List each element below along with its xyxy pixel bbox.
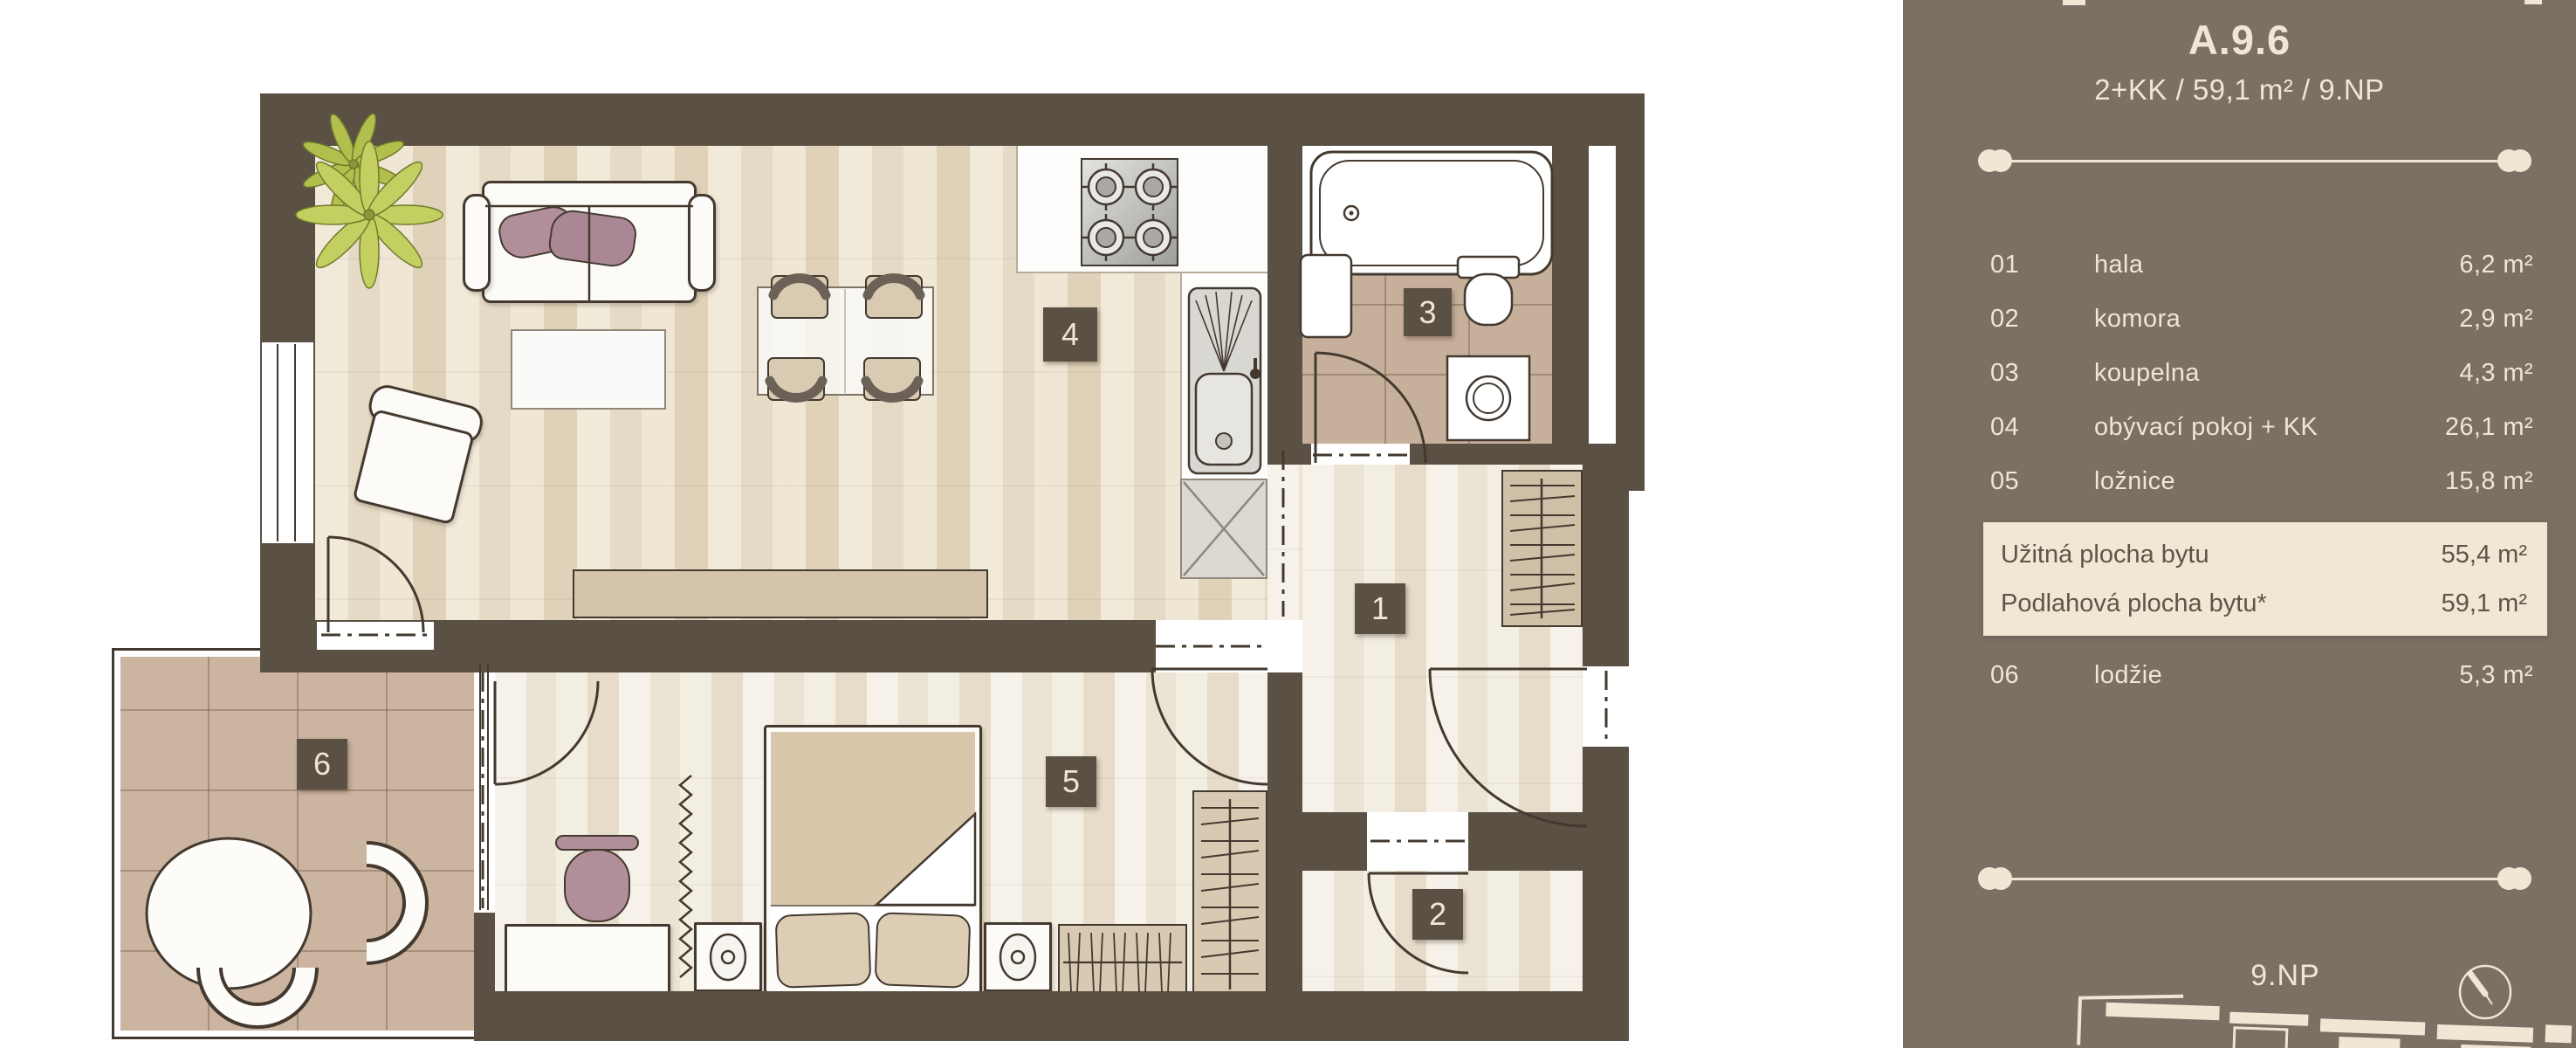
room-row: 03 koupelna 4,3 m² (1990, 346, 2533, 400)
bathroom-upper-floor (1302, 146, 1552, 272)
room-number: 06 (1990, 661, 2094, 690)
wall (1302, 812, 1367, 871)
unit-info-panel: A.9.6 2+KK / 59,1 m² / 9.NP 01 hala 6,2 … (1903, 0, 2576, 1048)
building-footprint-icon (2051, 992, 2575, 1048)
room-row: 02 komora 2,9 m² (1990, 292, 2533, 346)
dresser (1058, 924, 1187, 999)
divider (1978, 148, 2532, 173)
room-row: 06 lodžie 5,3 m² (1990, 648, 2533, 702)
room-area: 2,9 m² (2459, 305, 2533, 334)
unit-subtitle: 2+KK / 59,1 m² / 9.NP (1903, 73, 2576, 107)
entrance-opening (1583, 666, 1629, 747)
floor-label: 9.NP (2250, 959, 2320, 993)
total-row: Podlahová plocha bytu* 59,1 m² (2001, 579, 2527, 628)
wall (1583, 465, 1629, 666)
wall (1267, 444, 1311, 465)
pillow (775, 912, 872, 989)
room-tag-label: 1 (1371, 590, 1389, 627)
loggia-door-glass (474, 659, 495, 913)
room-number: 01 (1990, 251, 2094, 279)
divider-line (2006, 878, 2504, 880)
bed-duvet (771, 732, 975, 907)
room-tag-komora: 2 (1412, 889, 1463, 940)
apartment-plan-page: 1 2 3 4 5 6 A.9.6 2+KK / 59,1 m² / 9.NP … (0, 0, 2576, 1048)
nightstand (984, 922, 1052, 992)
loggia-access-opening (317, 622, 434, 650)
hall-passage-floor (1267, 444, 1302, 620)
decor-mark (2063, 0, 2085, 5)
tv-sideboard (573, 569, 988, 618)
room-tag-obyvaci-pokoj: 4 (1043, 307, 1097, 362)
room-row: 04 obývací pokoj + KK 26,1 m² (1990, 400, 2533, 454)
room-list: 01 hala 6,2 m² 02 komora 2,9 m² 03 koupe… (1990, 238, 2533, 508)
area-totals-box: Užitná plocha bytu 55,4 m² Podlahová plo… (1983, 522, 2547, 636)
stove-icon (1081, 158, 1178, 266)
decor-mark (2524, 0, 2542, 4)
room-name: komora (2094, 305, 2459, 334)
office-chair (564, 849, 630, 922)
room-area: 26,1 m² (2445, 413, 2533, 442)
wall (1267, 672, 1302, 991)
room-number: 05 (1990, 467, 2094, 496)
room-number: 04 (1990, 413, 2094, 442)
window (262, 342, 313, 543)
room-tag-label: 6 (313, 746, 331, 783)
room-tag-label: 3 (1419, 294, 1436, 331)
room-row: 01 hala 6,2 m² (1990, 238, 2533, 292)
total-value: 59,1 m² (2442, 589, 2527, 618)
dishwasher-icon (1180, 479, 1267, 579)
wall (495, 991, 1629, 1041)
total-row: Užitná plocha bytu 55,4 m² (2001, 530, 2527, 579)
room-number: 02 (1990, 305, 2094, 334)
divider (1978, 866, 2532, 891)
wall (1468, 812, 1583, 871)
nightstand (694, 922, 762, 992)
room-tag-label: 5 (1062, 763, 1080, 800)
room-row: 05 ložnice 15,8 m² (1990, 454, 2533, 508)
hall-wardrobe (1501, 470, 1583, 627)
wall (1267, 146, 1302, 444)
loggia-tile-floor (120, 657, 474, 1031)
room-area: 4,3 m² (2459, 359, 2533, 388)
room-tag-label: 2 (1429, 896, 1446, 933)
room-tag-lodzie: 6 (297, 739, 347, 789)
room-area: 6,2 m² (2459, 251, 2533, 279)
room-area: 5,3 m² (2459, 661, 2533, 690)
room-name: koupelna (2094, 359, 2459, 388)
room-tag-hala: 1 (1355, 583, 1405, 634)
coffee-table (511, 329, 666, 410)
total-label: Podlahová plocha bytu* (2001, 589, 2442, 618)
room-name: obývací pokoj + KK (2094, 413, 2445, 442)
office-chair-back (555, 835, 639, 851)
room-name: ložnice (2094, 467, 2445, 496)
wall (260, 93, 1645, 146)
wall (1552, 146, 1589, 444)
divider-dots-icon (1978, 866, 2013, 891)
room-area: 15,8 m² (2445, 467, 2533, 496)
wardrobe (1192, 790, 1267, 998)
divider-dots-icon (2497, 866, 2532, 891)
divider-line (2006, 160, 2504, 162)
divider-dots-icon (1978, 148, 2013, 173)
pillow (875, 912, 972, 989)
room-name: hala (2094, 251, 2459, 279)
wall (1410, 444, 1629, 465)
room-tag-koupelna: 3 (1404, 288, 1452, 336)
room-tag-loznice: 5 (1046, 756, 1096, 807)
room-number: 03 (1990, 359, 2094, 388)
unit-title: A.9.6 (1903, 16, 2576, 64)
sofa-armrest (463, 194, 491, 292)
room-tag-label: 4 (1061, 316, 1079, 353)
total-value: 55,4 m² (2442, 541, 2527, 569)
floor-plan: 1 2 3 4 5 6 (0, 0, 1903, 1048)
wall (1616, 93, 1645, 491)
room-name: lodžie (2094, 661, 2459, 690)
sofa-armrest (688, 194, 716, 292)
total-label: Užitná plocha bytu (2001, 541, 2442, 569)
wall (474, 913, 495, 1041)
divider-dots-icon (2497, 148, 2532, 173)
